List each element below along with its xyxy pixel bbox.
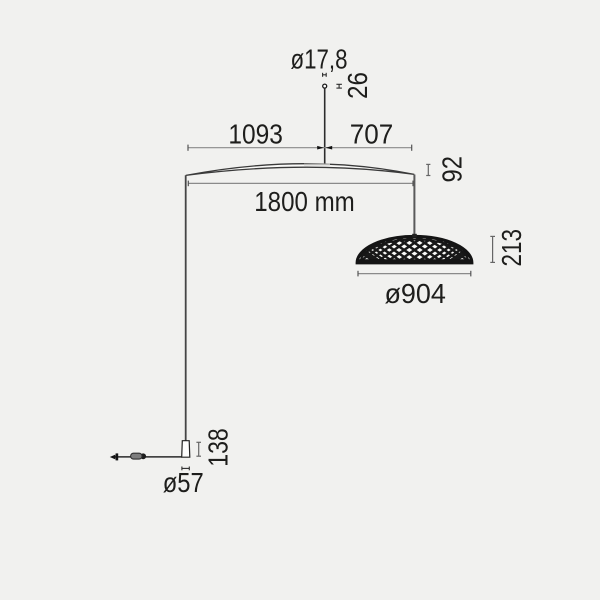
svg-text:213: 213	[496, 229, 527, 267]
svg-text:1800 mm: 1800 mm	[254, 186, 355, 217]
svg-text:26: 26	[342, 72, 373, 99]
svg-text:92: 92	[436, 156, 467, 183]
svg-text:ø17,8: ø17,8	[291, 44, 348, 75]
svg-text:138: 138	[203, 428, 234, 467]
svg-text:ø904: ø904	[384, 278, 446, 309]
svg-text:1093: 1093	[228, 118, 283, 149]
svg-text:ø57: ø57	[163, 467, 204, 498]
svg-text:707: 707	[350, 118, 394, 149]
